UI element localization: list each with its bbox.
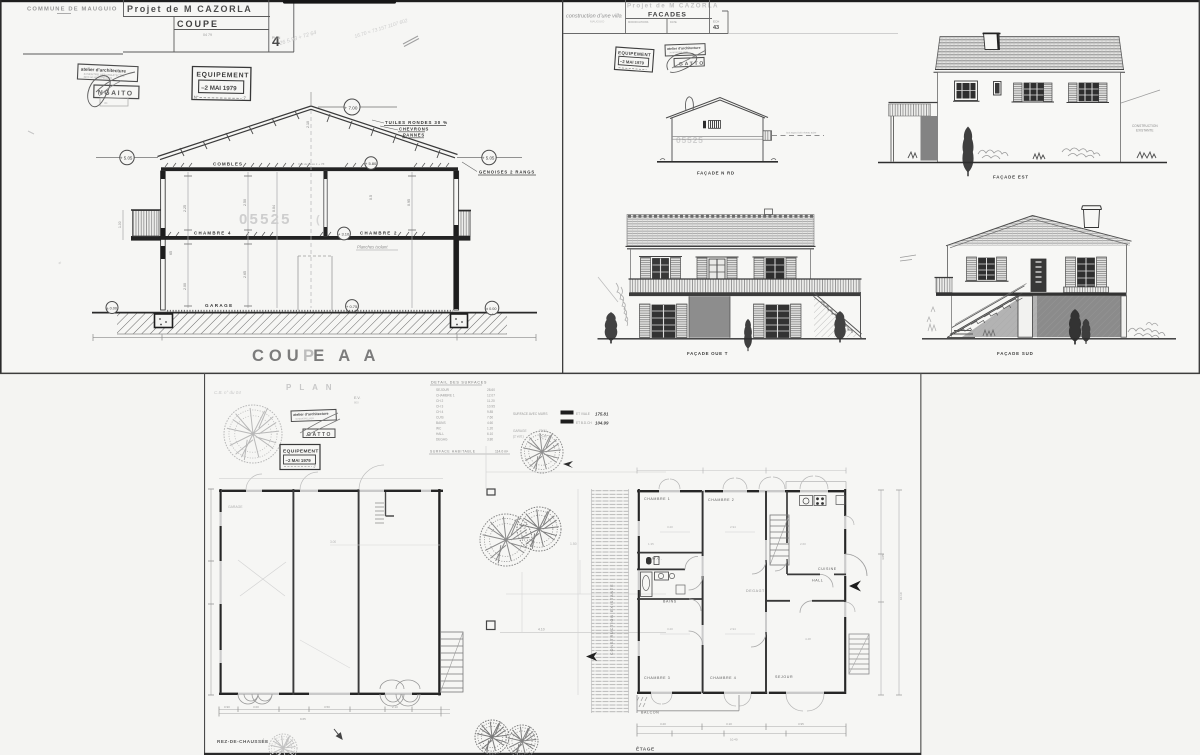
svg-text:GARAGE: GARAGE xyxy=(228,505,243,509)
svg-text:Projet de M CAZORLA: Projet de M CAZORLA xyxy=(127,4,252,14)
svg-text:1.35: 1.35 xyxy=(648,542,654,546)
svg-text:3.00: 3.00 xyxy=(253,705,259,709)
svg-text:FAÇADE N RD: FAÇADE N RD xyxy=(697,171,735,176)
svg-text:+ 7.00: + 7.00 xyxy=(345,105,358,110)
svg-text:85.40: 85.40 xyxy=(539,435,547,439)
svg-text:0.90: 0.90 xyxy=(224,705,230,709)
svg-text:BAINS: BAINS xyxy=(663,600,677,604)
svg-text:+ 5.05: + 5.05 xyxy=(120,156,133,161)
svg-text:CHAMBRE 4: CHAMBRE 4 xyxy=(194,231,232,236)
svg-text:ET VIALE: ET VIALE xyxy=(576,412,590,416)
svg-text:3.50: 3.50 xyxy=(324,705,330,709)
svg-text:4.10: 4.10 xyxy=(538,628,545,632)
svg-text:2.00: 2.00 xyxy=(183,283,187,290)
svg-text:± 0.00: ± 0.00 xyxy=(486,307,497,311)
svg-text:800: 800 xyxy=(354,401,359,405)
svg-text:73.51: 73.51 xyxy=(539,429,547,433)
svg-text:43: 43 xyxy=(713,25,719,31)
svg-text:SEJOUR: SEJOUR xyxy=(775,675,793,679)
svg-text:2.25: 2.25 xyxy=(183,205,187,212)
svg-text:10.10: 10.10 xyxy=(899,592,903,600)
svg-text:6.10: 6.10 xyxy=(487,432,493,436)
svg-text:+ 5.05: + 5.05 xyxy=(482,156,495,161)
svg-text:FAÇADE EST: FAÇADE EST xyxy=(993,175,1029,180)
svg-text:114.0 m²: 114.0 m² xyxy=(495,450,509,454)
svg-text:COU E A A: COU E A A xyxy=(252,347,380,365)
svg-text::7: :7 xyxy=(313,465,316,469)
svg-text:Projet de M CAZORLA: Projet de M CAZORLA xyxy=(627,3,719,10)
svg-text:ECH: ECH xyxy=(713,20,719,24)
svg-text:P L A N: P L A N xyxy=(286,383,335,392)
svg-text:REZ-DE-CHAUSSÉE: REZ-DE-CHAUSSÉE xyxy=(217,737,269,744)
svg-text:3.95: 3.95 xyxy=(798,722,804,726)
svg-text:4.60: 4.60 xyxy=(487,421,493,425)
svg-text:EXISTANTE: EXISTANTE xyxy=(1136,129,1153,133)
svg-text:+ 5.80: + 5.80 xyxy=(365,161,377,166)
svg-text:W.C.: W.C. xyxy=(652,557,662,561)
svg-text:12.07: 12.07 xyxy=(487,394,495,398)
svg-text:P: P xyxy=(303,347,314,365)
svg-text:CHAMBRE 1: CHAMBRE 1 xyxy=(644,497,670,501)
svg-text:FAÇADE SUD: FAÇADE SUD xyxy=(997,351,1034,356)
svg-text:CHAMBRE 3: CHAMBRE 3 xyxy=(644,676,670,680)
svg-text:0.5: 0.5 xyxy=(369,195,373,200)
svg-text:CHAMBRE 2: CHAMBRE 2 xyxy=(708,498,734,502)
svg-text:4.48: 4.48 xyxy=(805,637,811,641)
svg-text:EQUIPEMENT: EQUIPEMENT xyxy=(196,72,249,80)
svg-text:FACADES: FACADES xyxy=(648,12,687,19)
svg-text:–2 MAI 1979: –2 MAI 1979 xyxy=(201,85,237,93)
svg-text:PLAN: PLAN xyxy=(272,36,281,40)
svg-text:GENOISES 2 RANGS: GENOISES 2 RANGS xyxy=(479,170,535,175)
svg-text:9.65: 9.65 xyxy=(300,717,306,721)
svg-text:175.81: 175.81 xyxy=(595,412,609,417)
svg-text:Planches isolant: Planches isolant xyxy=(357,245,388,250)
svg-text:MAUGUIO: MAUGUIO xyxy=(590,20,605,24)
svg-text:CONSTRUCTION: CONSTRUCTION xyxy=(1132,124,1158,128)
svg-text:BAINS: BAINS xyxy=(436,421,446,425)
svg-text:CHAMBRE 4: CHAMBRE 4 xyxy=(710,676,736,680)
svg-text:04 79: 04 79 xyxy=(203,33,212,37)
svg-text:C.B. n° du 04: C.B. n° du 04 xyxy=(214,390,241,395)
svg-text:11.20: 11.20 xyxy=(487,399,495,403)
svg-text:10.40: 10.40 xyxy=(730,738,738,742)
svg-text:3.20: 3.20 xyxy=(660,722,666,726)
svg-text:3.80: 3.80 xyxy=(487,438,493,442)
svg-text:2.94: 2.94 xyxy=(730,525,736,529)
svg-text:2.65: 2.65 xyxy=(243,271,247,278)
svg-text:CHEVRONS: CHEVRONS xyxy=(399,127,429,132)
svg-text:GATTO: GATTO xyxy=(307,432,332,438)
svg-text:CH 3: CH 3 xyxy=(436,405,443,409)
svg-text:SURFACE HABITABLE: SURFACE HABITABLE xyxy=(430,450,476,454)
svg-text:10.95: 10.95 xyxy=(487,405,495,409)
svg-text:CUISINE: CUISINE xyxy=(818,567,837,571)
svg-text:± 0.00: ± 0.00 xyxy=(107,307,118,311)
svg-text:3.00: 3.00 xyxy=(330,540,336,544)
svg-text:2.50: 2.50 xyxy=(243,199,247,206)
svg-text:CH 2: CH 2 xyxy=(436,399,443,403)
svg-text:GARAGE: GARAGE xyxy=(205,303,234,308)
svg-text:3.10: 3.10 xyxy=(726,722,732,726)
svg-text:COUPE: COUPE xyxy=(177,19,219,29)
svg-text:MODIFICATIONS: MODIFICATIONS xyxy=(628,20,649,24)
svg-text:tout egout toit niveau acier: tout egout toit niveau acier xyxy=(786,131,817,135)
svg-text:CONSTRUCTION EXISTANTE: CONSTRUCTION EXISTANTE xyxy=(610,583,614,655)
svg-text:(: ( xyxy=(316,214,320,226)
svg-text:–2 MAI 1979: –2 MAI 1979 xyxy=(286,458,312,463)
svg-text:COMMUNE DE MAUGUIO: COMMUNE DE MAUGUIO xyxy=(27,7,118,13)
svg-text:DETAIL DES SURFACES: DETAIL DES SURFACES xyxy=(431,381,487,385)
svg-text:7.60: 7.60 xyxy=(487,416,493,420)
svg-text:1.20: 1.20 xyxy=(487,427,493,431)
svg-text:CH 4: CH 4 xyxy=(436,410,443,414)
svg-text:CUIS: CUIS xyxy=(436,416,444,420)
svg-text:0.95: 0.95 xyxy=(407,199,411,206)
svg-text:HALL: HALL xyxy=(812,579,823,583)
svg-text:EQUIPEMENT: EQUIPEMENT xyxy=(283,449,319,455)
svg-text:GARAGE: GARAGE xyxy=(513,429,527,433)
svg-text:ET B.D.CH: ET B.D.CH xyxy=(576,421,592,425)
svg-text:2.10: 2.10 xyxy=(306,121,310,128)
svg-text:2.60: 2.60 xyxy=(800,542,806,546)
svg-text:FAÇADE OUE T: FAÇADE OUE T xyxy=(687,351,728,356)
svg-text:WC: WC xyxy=(436,427,442,431)
svg-text:DEGAGT: DEGAGT xyxy=(746,589,765,593)
svg-text:CHAMBRE 1: CHAMBRE 1 xyxy=(436,394,455,398)
svg-text:2.10: 2.10 xyxy=(392,705,398,709)
svg-text:COMBLES: COMBLES xyxy=(213,162,243,167)
svg-text:4.05: 4.05 xyxy=(881,554,885,560)
svg-text:3.20: 3.20 xyxy=(667,525,673,529)
svg-text:65: 65 xyxy=(169,251,173,255)
svg-text:CHAMBRE 2: CHAMBRE 2 xyxy=(360,231,398,236)
svg-text:N°: N° xyxy=(194,95,199,100)
svg-text:TUILES RONDES 30 %: TUILES RONDES 30 % xyxy=(385,120,448,125)
svg-text:1.50: 1.50 xyxy=(570,542,577,546)
svg-text:05525: 05525 xyxy=(239,211,292,228)
svg-text:+ 0.75: + 0.75 xyxy=(346,304,358,309)
svg-text:30.: 30. xyxy=(104,101,108,105)
svg-text:104.99: 104.99 xyxy=(595,421,609,426)
svg-text:DEGAG: DEGAG xyxy=(436,438,448,442)
svg-text:(2 voit.): (2 voit.) xyxy=(513,435,524,439)
svg-text:+ 3.10: + 3.10 xyxy=(338,232,350,237)
svg-text:DATE: DATE xyxy=(670,20,677,24)
svg-text:2.94: 2.94 xyxy=(730,627,736,631)
svg-text:PANNES: PANNES xyxy=(403,133,425,138)
svg-text:3.20: 3.20 xyxy=(667,627,673,631)
svg-text:NGAITO: NGAITO xyxy=(98,90,134,98)
svg-text:28.60: 28.60 xyxy=(487,388,495,392)
svg-text:SEJOUR: SEJOUR xyxy=(436,388,450,392)
svg-text:E.V.: E.V. xyxy=(354,396,360,400)
svg-text:9.85: 9.85 xyxy=(487,410,493,414)
svg-text:HALL: HALL xyxy=(436,432,444,436)
svg-text:SURFACE AVEC MURS: SURFACE AVEC MURS xyxy=(513,412,547,416)
svg-text:1.00: 1.00 xyxy=(118,221,122,228)
